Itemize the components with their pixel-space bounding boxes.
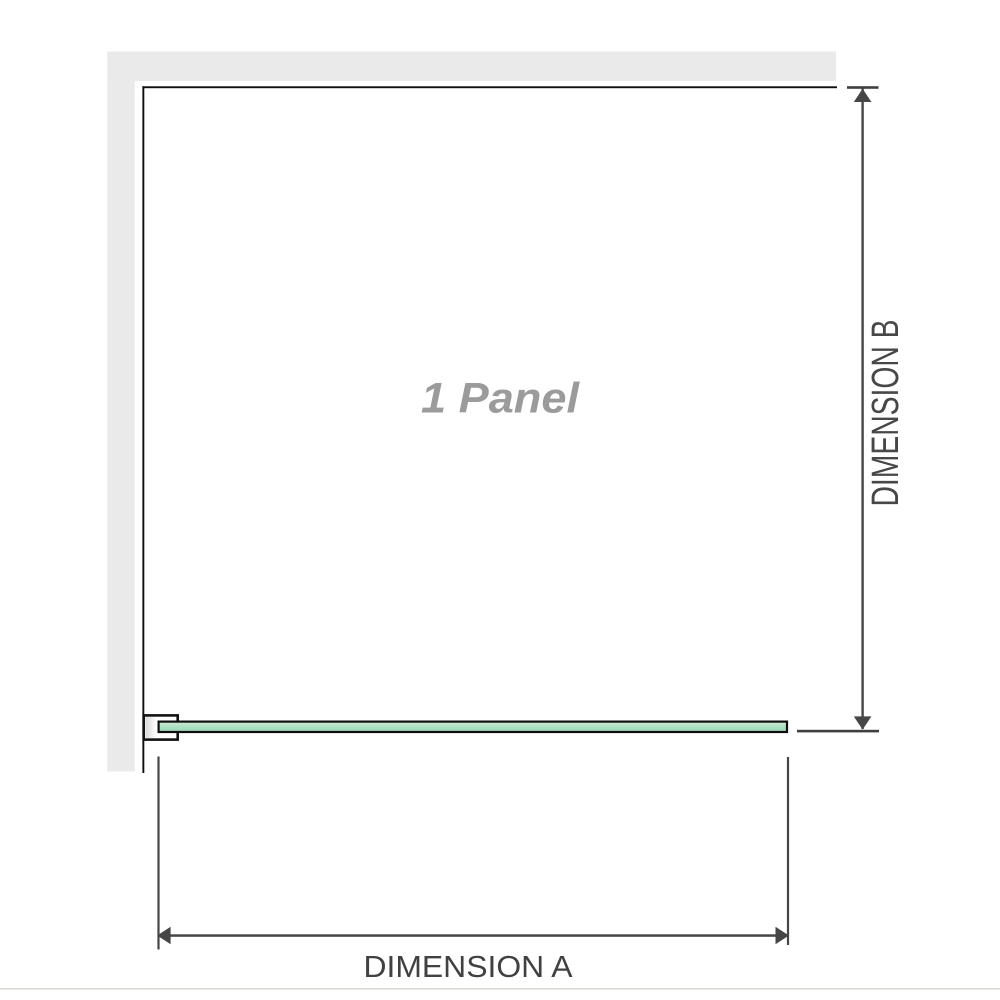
svg-text:DIMENSION B: DIMENSION B	[865, 320, 907, 507]
svg-text:1 Panel: 1 Panel	[421, 375, 580, 423]
svg-text:DIMENSION A: DIMENSION A	[364, 949, 573, 984]
